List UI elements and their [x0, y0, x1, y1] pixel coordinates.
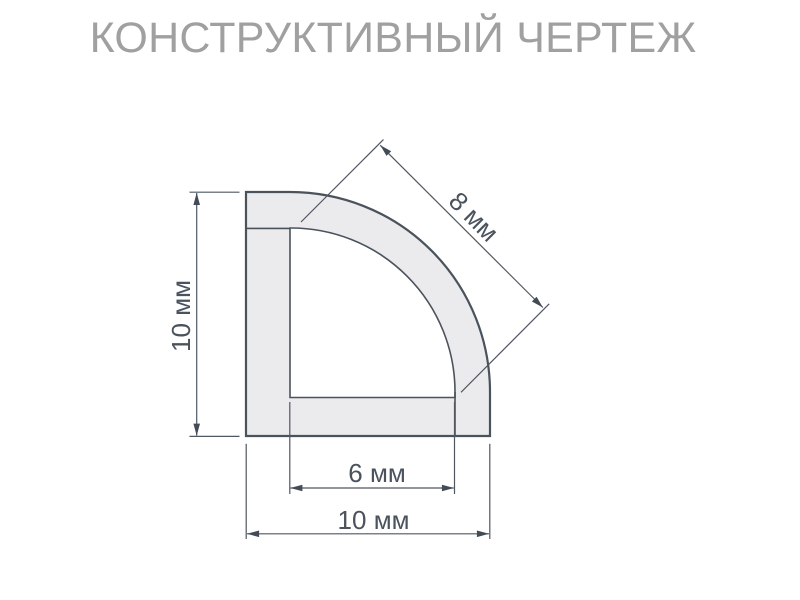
svg-text:КОНСТРУКТИВНЫЙ ЧЕРТЕЖ: КОНСТРУКТИВНЫЙ ЧЕРТЕЖ [90, 13, 697, 62]
svg-text:10 мм: 10 мм [166, 280, 196, 352]
svg-text:10 мм: 10 мм [338, 505, 410, 535]
svg-text:6 мм: 6 мм [348, 458, 405, 488]
